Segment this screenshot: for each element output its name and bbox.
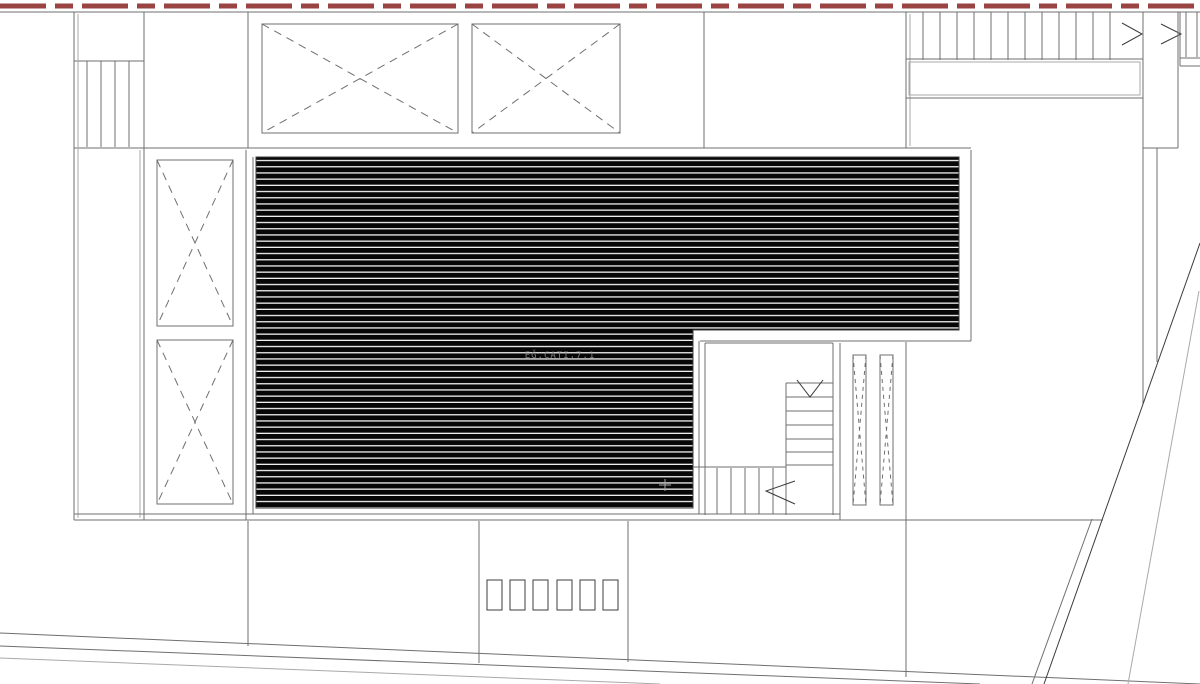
stair-treads-upper bbox=[786, 383, 833, 515]
roof-plan-drawing bbox=[0, 0, 1200, 684]
road-edge-line-2 bbox=[0, 646, 980, 684]
plot-diagonal-1 bbox=[1044, 243, 1200, 684]
vent-x-brace bbox=[853, 355, 893, 505]
stair-treads-lower bbox=[717, 468, 773, 514]
plot-diagonal-3 bbox=[1128, 291, 1199, 684]
window-openings bbox=[487, 580, 618, 610]
stair-right-segment bbox=[1180, 12, 1200, 66]
direction-arrow-right-1 bbox=[1122, 23, 1142, 45]
stair-top-right bbox=[906, 12, 1200, 98]
lower-facade bbox=[74, 520, 1103, 663]
facade-grid-lines bbox=[74, 520, 1103, 663]
roof-plan-canvas: EĞ.ÇATI,7.1 bbox=[0, 0, 1200, 684]
stair-treads-top bbox=[923, 12, 1110, 60]
stair-mid-right bbox=[693, 343, 840, 520]
plot-diagonal-2 bbox=[1032, 519, 1092, 684]
right-wall bbox=[1143, 12, 1178, 404]
stair-landing bbox=[906, 59, 1143, 98]
roof-hatch-area bbox=[74, 150, 971, 514]
roof-hatch-fill bbox=[256, 157, 959, 508]
roof-vents bbox=[853, 342, 906, 677]
road-edge-line-1 bbox=[0, 633, 1200, 684]
road-edge-line-3 bbox=[0, 658, 660, 684]
left-arrow bbox=[766, 481, 795, 504]
roof-area-label: EĞ.ÇATI,7.1 bbox=[512, 350, 608, 363]
top-left-ladder bbox=[87, 61, 129, 147]
